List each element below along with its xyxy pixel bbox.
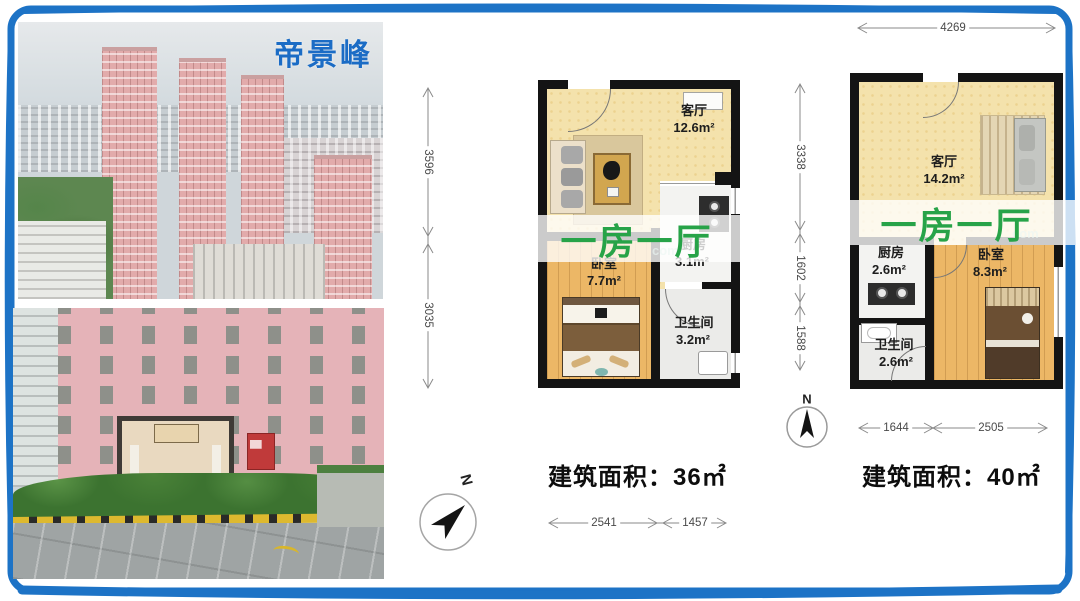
pavement: [13, 523, 384, 579]
bed: [562, 297, 640, 377]
planter: [317, 465, 384, 527]
room-area-bedroom: 8.3m²: [973, 265, 1007, 279]
bed: [985, 287, 1040, 379]
layout-banner-36: 一房一厅: [518, 215, 755, 262]
dimension-label: 3338: [794, 141, 806, 173]
dimension-label: 2505: [975, 422, 1007, 434]
side-building: [13, 308, 58, 487]
dimension-label: 2541: [588, 517, 620, 529]
entrance-opening: [923, 73, 958, 82]
sofa: [550, 140, 586, 214]
dimension-label: 1588: [794, 322, 806, 354]
entrance-opening: [568, 80, 610, 89]
room-label-living: 客厅: [931, 155, 957, 169]
bath-door-opening: [665, 282, 702, 289]
coffee-table: [593, 153, 631, 205]
built-area-label-36: 建筑面积：36㎡: [548, 457, 727, 492]
dimension-label: 4269: [937, 22, 969, 34]
built-area-label-40: 建筑面积：40㎡: [862, 457, 1041, 492]
dimension-label: 1644: [880, 422, 912, 434]
aerial-photo: 帝景峰: [18, 22, 383, 299]
sofa: [1014, 118, 1046, 192]
room-area-bath: 2.6m²: [879, 355, 913, 369]
low-buildings: [18, 221, 106, 299]
room-label-living: 客厅: [681, 104, 707, 118]
red-sign: [247, 433, 275, 470]
wall: [925, 237, 934, 380]
layout-banner-text: 一房一厅: [518, 213, 755, 265]
room-label-bath: 卫生间: [874, 338, 913, 352]
room-area-kitchen: 2.6m²: [872, 263, 906, 277]
dimension-label: 3596: [422, 146, 434, 178]
kitchen-window: [660, 181, 715, 186]
dimension-label: 1602: [794, 252, 806, 284]
room-label-bedroom: 卧室: [978, 248, 1004, 262]
bathtub: [698, 351, 728, 375]
entrance-door-arc: [923, 82, 959, 118]
compass-north-label: N: [802, 392, 811, 407]
room-area-bath: 3.2m²: [676, 333, 710, 347]
room-label-bath: 卫生间: [674, 316, 713, 330]
dimension-label: 3035: [422, 299, 434, 331]
dimension-label: 1457: [679, 517, 711, 529]
street-photo: [13, 308, 384, 579]
entrance-door-arc: [568, 89, 611, 132]
window: [1054, 267, 1063, 337]
window: [731, 353, 740, 373]
project-title: 帝景峰: [274, 30, 373, 74]
room-area-living: 12.6m²: [673, 121, 714, 135]
layout-banner-text: 一房一厅: [838, 197, 1075, 249]
wall: [715, 172, 731, 185]
low-buildings: [193, 244, 324, 299]
window: [731, 188, 740, 214]
layout-banner-40: 一房一厅: [838, 200, 1075, 245]
room-area-living: 14.2m²: [923, 172, 964, 186]
room-area-bedroom: 7.7m²: [587, 274, 621, 288]
stove: [868, 283, 915, 305]
